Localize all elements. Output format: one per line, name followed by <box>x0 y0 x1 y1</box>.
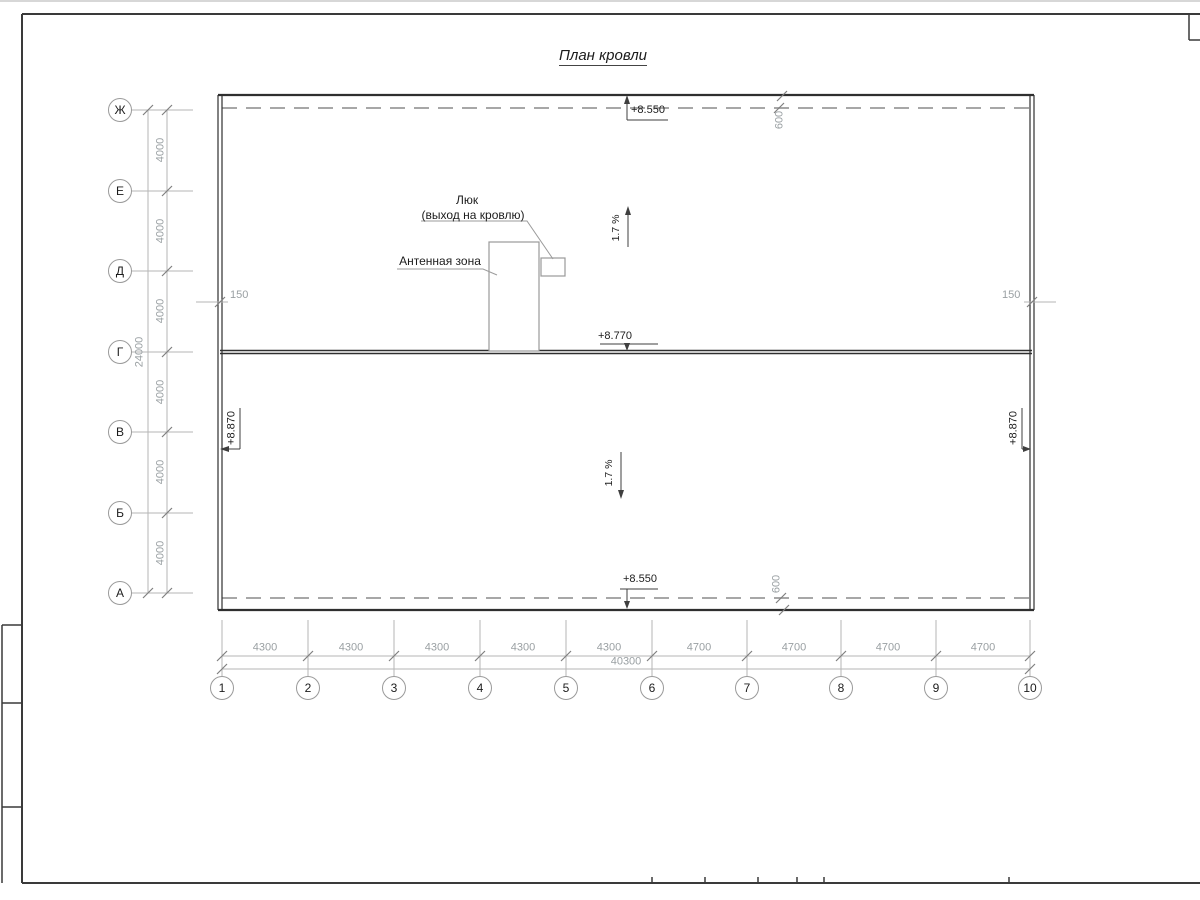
axis-bubble-col-4: 4 <box>468 676 492 700</box>
slope-label-upper: 1.7 % <box>611 215 622 242</box>
dim-row-spacing: 4000 <box>156 219 167 243</box>
axis-label: Г <box>117 345 124 359</box>
axis-label: Е <box>116 184 124 198</box>
dim-col-spacing: 4700 <box>782 643 806 654</box>
axis-bubble-col-3: 3 <box>382 676 406 700</box>
axis-label: 8 <box>838 681 845 695</box>
axis-label: 5 <box>563 681 570 695</box>
dim-col-spacing: 4700 <box>687 643 711 654</box>
hatch-label-subtitle: (выход на кровлю) <box>422 209 525 221</box>
axis-bubble-col-9: 9 <box>924 676 948 700</box>
elevation-eave-top: +8.550 <box>631 105 665 116</box>
dim-row-spacing: 4000 <box>156 541 167 565</box>
axis-label: 10 <box>1023 681 1036 695</box>
roof-outline <box>218 95 1034 610</box>
left-dim-ticks <box>143 105 1037 598</box>
dim-row-spacing: 4000 <box>156 299 167 323</box>
elevation-marks <box>225 100 1027 604</box>
ridge-line <box>220 351 1032 354</box>
drawing-linework <box>0 0 1200 900</box>
axis-label: Д <box>116 264 124 278</box>
dim-overhang-top: 600 <box>775 111 786 129</box>
dim-col-spacing: 4300 <box>253 643 277 654</box>
dim-col-total: 40300 <box>611 657 642 668</box>
dim-row-spacing: 4000 <box>156 138 167 162</box>
left-dim-lines <box>131 110 1056 593</box>
dim-col-spacing: 4300 <box>511 643 535 654</box>
axis-label: Б <box>116 506 124 520</box>
sheet-frame <box>2 14 1200 883</box>
elevation-ridge: +8.770 <box>598 331 632 342</box>
axis-label: 4 <box>477 681 484 695</box>
axis-bubble-col-2: 2 <box>296 676 320 700</box>
axis-label: Ж <box>114 103 125 117</box>
roof-hatch-rect <box>541 258 565 276</box>
dim-row-total: 24000 <box>135 337 146 368</box>
axis-bubble-col-6: 6 <box>640 676 664 700</box>
axis-label: В <box>116 425 124 439</box>
axis-label: 1 <box>219 681 226 695</box>
axis-bubble-row-d: Д <box>108 259 132 283</box>
axis-bubble-col-10: 10 <box>1018 676 1042 700</box>
axis-bubble-row-b: Б <box>108 501 132 525</box>
axis-bubble-col-5: 5 <box>554 676 578 700</box>
axis-bubble-col-8: 8 <box>829 676 853 700</box>
dim-offset-right: 150 <box>1002 290 1020 301</box>
elevation-eave-bottom: +8.550 <box>623 574 657 585</box>
axis-bubble-col-1: 1 <box>210 676 234 700</box>
axis-label: 3 <box>391 681 398 695</box>
axis-bubble-col-7: 7 <box>735 676 759 700</box>
dim-col-spacing: 4300 <box>597 643 621 654</box>
axis-label: 9 <box>933 681 940 695</box>
hatch-label-title: Люк <box>456 194 478 206</box>
dim-row-spacing: 4000 <box>156 460 167 484</box>
drawing-title: План кровли <box>559 48 647 66</box>
axis-label: 6 <box>649 681 656 695</box>
axis-bubble-row-g: Г <box>108 340 132 364</box>
axis-bubble-row-zh: Ж <box>108 98 132 122</box>
elevation-arrowheads <box>220 95 1031 609</box>
slope-arrows <box>618 206 631 499</box>
antenna-zone-rect <box>489 242 539 351</box>
drawing-sheet: План кровли Ж Е Д Г В Б А 1 2 3 4 5 6 7 … <box>0 0 1200 900</box>
axis-bubble-row-a: А <box>108 581 132 605</box>
dim-row-spacing: 4000 <box>156 380 167 404</box>
dim-col-spacing: 4700 <box>971 643 995 654</box>
slope-label-lower: 1.7 % <box>604 460 615 487</box>
axis-label: А <box>116 586 124 600</box>
elevation-parapet-right: +8.870 <box>1009 411 1020 445</box>
axis-label: 2 <box>305 681 312 695</box>
axis-bubble-row-e: Е <box>108 179 132 203</box>
axis-bubble-row-v: В <box>108 420 132 444</box>
dim-overhang-bottom: 600 <box>772 575 783 593</box>
axis-label: 7 <box>744 681 751 695</box>
dim-offset-left: 150 <box>230 290 248 301</box>
dim-col-spacing: 4700 <box>876 643 900 654</box>
antenna-zone-label: Антенная зона <box>399 255 481 267</box>
dim-col-spacing: 4300 <box>425 643 449 654</box>
dim-col-spacing: 4300 <box>339 643 363 654</box>
elevation-parapet-left: +8.870 <box>227 411 238 445</box>
